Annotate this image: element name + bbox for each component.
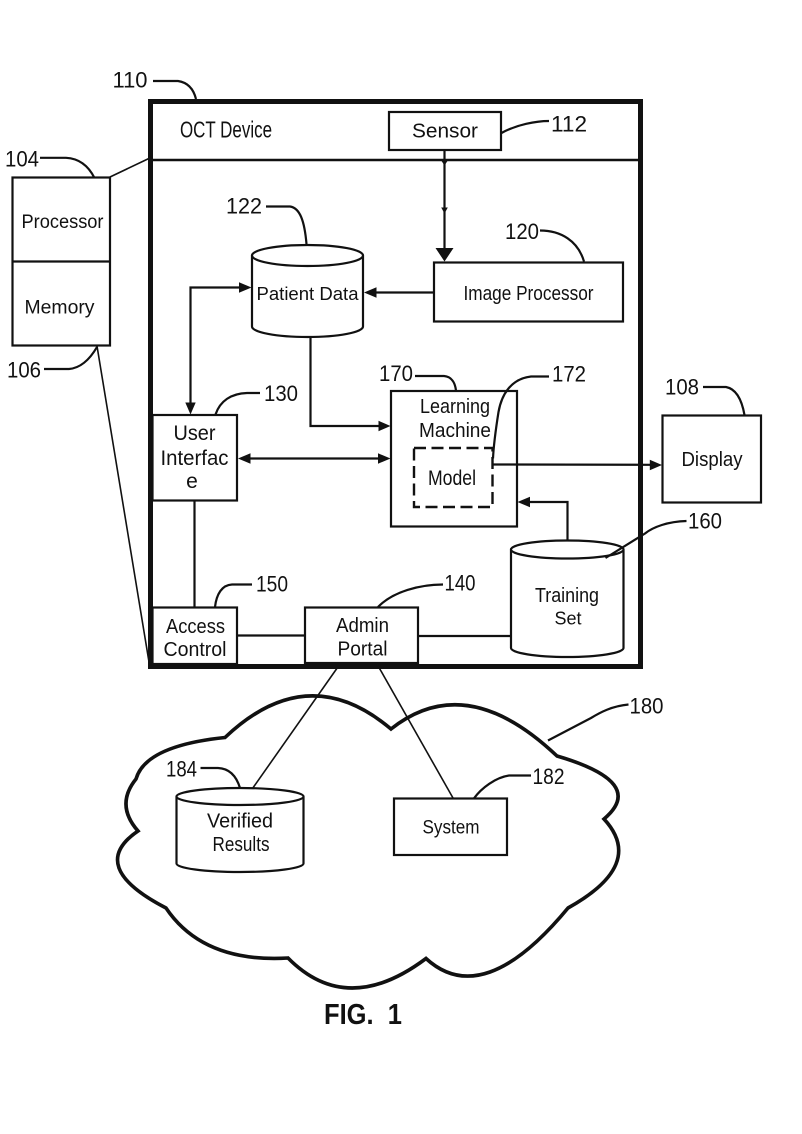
svg-text:130: 130 [264, 381, 298, 406]
svg-text:Display: Display [682, 449, 743, 471]
svg-text:184: 184 [166, 757, 197, 782]
svg-text:172: 172 [552, 362, 586, 387]
svg-text:122: 122 [226, 194, 262, 219]
svg-text:106: 106 [7, 358, 41, 383]
svg-text:182: 182 [533, 764, 565, 789]
svg-text:System: System [423, 818, 480, 839]
svg-text:Machine: Machine [419, 420, 491, 442]
svg-text:110: 110 [113, 68, 148, 93]
svg-text:140: 140 [445, 571, 476, 596]
svg-text:OCT Device: OCT Device [180, 117, 272, 143]
svg-text:Sensor: Sensor [412, 121, 478, 143]
svg-text:Image Processor: Image Processor [464, 283, 594, 305]
svg-text:Set: Set [555, 609, 582, 629]
svg-text:Verified: Verified [207, 811, 273, 833]
svg-text:120: 120 [505, 219, 539, 244]
svg-text:Control: Control [164, 639, 227, 661]
svg-text:Training: Training [535, 585, 599, 607]
svg-text:Access: Access [166, 616, 225, 638]
svg-text:150: 150 [256, 572, 288, 597]
svg-text:Admin: Admin [336, 615, 389, 637]
svg-text:Processor: Processor [22, 211, 104, 233]
svg-text:Memory: Memory [25, 297, 95, 319]
svg-text:Model: Model [428, 467, 476, 490]
svg-text:104: 104 [5, 147, 39, 172]
svg-text:e: e [186, 470, 198, 493]
svg-text:Patient Data: Patient Data [257, 284, 360, 304]
svg-text:112: 112 [551, 112, 587, 137]
svg-text:FIG. 1: FIG. 1 [324, 999, 402, 1031]
svg-text:Interfac: Interfac [161, 447, 229, 470]
svg-text:Portal: Portal [338, 639, 388, 661]
svg-text:User: User [174, 422, 216, 445]
svg-text:Results: Results [213, 834, 270, 856]
svg-text:160: 160 [688, 509, 722, 534]
svg-text:Learning: Learning [420, 396, 490, 418]
svg-text:170: 170 [379, 361, 413, 386]
svg-text:180: 180 [630, 694, 664, 719]
svg-text:108: 108 [665, 375, 699, 400]
